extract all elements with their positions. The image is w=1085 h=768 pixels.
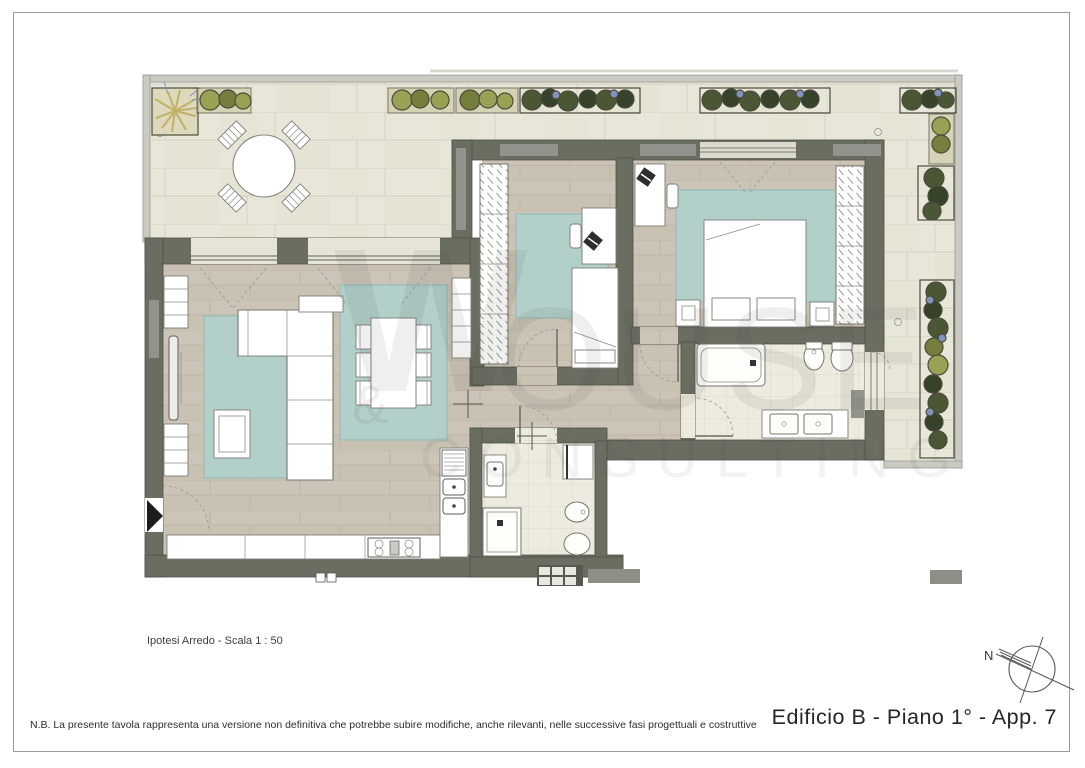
bedroom1-bed — [572, 268, 618, 368]
washing-machine — [563, 445, 593, 479]
scale-label: Ipotesi Arredo - Scala 1 : 50 — [147, 635, 283, 647]
bedroom1-window — [500, 144, 558, 156]
bedroom2-french-window — [700, 142, 796, 158]
floor-plan-sheet: N W & OUSE CONSULTING Ipotesi Arredo - S… — [0, 0, 1085, 768]
double-bed — [704, 220, 806, 327]
sofa-back-cushion — [299, 296, 343, 312]
dining-set — [356, 318, 431, 408]
kitchen-sink — [440, 448, 468, 557]
parapet-bottom — [884, 461, 962, 468]
bath1-niche — [851, 390, 864, 418]
cooktop — [368, 538, 420, 557]
shower — [483, 508, 521, 556]
double-vanity — [762, 410, 848, 438]
bedroom2-wardrobe — [836, 166, 864, 324]
planter-olive — [456, 88, 518, 113]
wall-bedroom-divider — [616, 158, 633, 385]
round-table — [233, 135, 295, 197]
living-window-1 — [191, 238, 277, 264]
bedroom2-window-1 — [640, 144, 696, 156]
tv-screen — [169, 336, 178, 420]
vent-grate — [537, 565, 583, 586]
desk-chair — [667, 184, 678, 208]
corridor-stub-floor — [631, 340, 683, 388]
dining-table — [371, 318, 416, 408]
nightstand-right — [810, 302, 834, 326]
north-needle — [999, 649, 1031, 669]
bedroom2-window-2 — [833, 144, 881, 156]
parapet-left — [143, 75, 150, 242]
disclaimer-note: N.B. La presente tavola rappresenta una … — [30, 719, 757, 731]
compass: N — [984, 637, 1074, 703]
parapet-top — [143, 75, 962, 82]
planter-palm — [152, 82, 204, 135]
toilet — [564, 533, 590, 555]
sheet-title: Edificio B - Piano 1° - App. 7 — [772, 705, 1057, 730]
planter-olive — [388, 88, 454, 113]
bathroom1-terrace-door — [865, 352, 884, 410]
parapet-right — [955, 75, 962, 468]
wall-bathroom2-west — [470, 428, 482, 562]
desk-chair — [570, 224, 581, 248]
bathtub — [697, 344, 765, 386]
living-window-2 — [308, 238, 440, 264]
wall-bathroom2-east — [595, 441, 607, 562]
terrace-side-inset — [456, 148, 466, 230]
wall-bath-south — [595, 440, 884, 460]
bedroom1-door-gap — [517, 367, 557, 385]
bidet — [804, 342, 824, 370]
toilet — [831, 342, 853, 371]
bath2-sink — [484, 455, 506, 497]
bedroom2-door-gap — [640, 327, 678, 344]
bidet — [565, 502, 589, 522]
planter-olive — [197, 88, 251, 113]
bathroom1-door-gap — [681, 394, 695, 438]
exterior-step — [930, 570, 962, 584]
coffee-table — [214, 410, 250, 458]
west-wall-inset — [149, 300, 159, 358]
compass-north-label: N — [984, 648, 993, 663]
floor-plan-drawing: N — [0, 0, 1085, 768]
wall-east — [865, 140, 884, 460]
shelf-unit — [452, 278, 471, 358]
nightstand-left — [676, 300, 700, 326]
exterior-step — [588, 569, 640, 583]
